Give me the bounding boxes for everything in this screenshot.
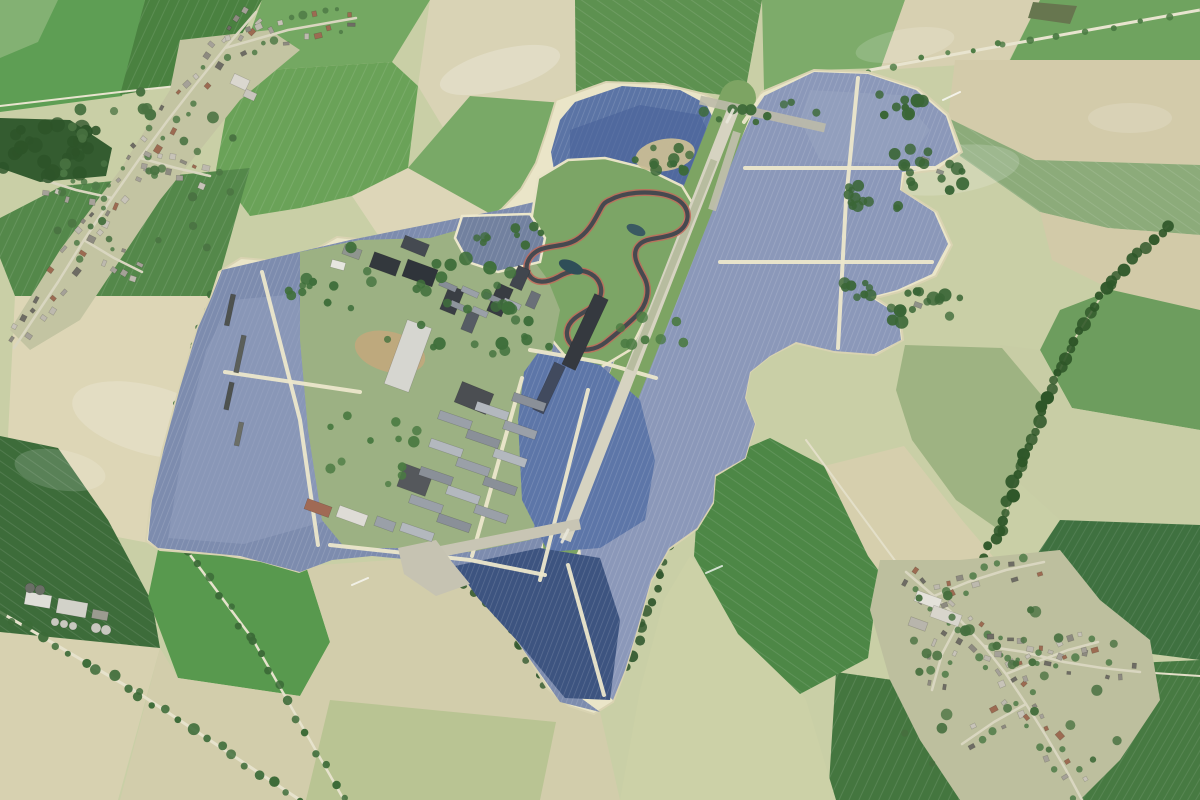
tree [430, 344, 437, 351]
garden-tree [252, 50, 258, 56]
tree [636, 311, 648, 323]
tree [848, 187, 854, 193]
tree [205, 573, 214, 582]
tree [141, 103, 152, 114]
tree [88, 223, 94, 229]
village-house [1026, 646, 1034, 653]
tree [910, 637, 918, 645]
village-house [1008, 562, 1014, 567]
tree [67, 136, 79, 148]
tree [275, 680, 284, 689]
tree [188, 192, 197, 201]
garden-tree [998, 636, 1003, 641]
tree [324, 299, 332, 307]
village-house [934, 584, 941, 590]
tree [229, 603, 235, 609]
tree [366, 276, 377, 287]
garden-tree [1013, 701, 1018, 706]
tree [480, 239, 487, 246]
tree [853, 293, 861, 301]
garden-tree [983, 665, 988, 670]
garden-tree [101, 206, 106, 211]
garden-tree [1071, 653, 1079, 661]
village-house [169, 153, 176, 160]
tree [323, 761, 330, 768]
tree [511, 315, 520, 324]
tree [292, 716, 300, 724]
tree [656, 334, 667, 345]
village-house [1132, 663, 1137, 669]
tree [915, 668, 923, 676]
tree [345, 242, 356, 253]
tree [312, 750, 319, 757]
tree [1001, 496, 1013, 508]
tree [325, 463, 335, 473]
tree [499, 345, 510, 356]
tree [27, 137, 42, 152]
tree [945, 160, 954, 169]
garden-tree [76, 255, 83, 262]
tree [1082, 29, 1088, 35]
tree [106, 236, 113, 243]
garden-tree [980, 563, 988, 571]
tree [82, 142, 94, 154]
tree [1013, 660, 1020, 667]
garden-tree [1024, 724, 1029, 729]
tree [309, 278, 317, 286]
tree [1091, 685, 1102, 696]
tree [1149, 234, 1160, 245]
village-house [283, 42, 289, 46]
village-house [347, 23, 355, 27]
tree [124, 685, 132, 693]
tree [922, 648, 932, 658]
tree [431, 259, 441, 269]
tree [188, 723, 200, 735]
tree [338, 458, 346, 466]
tree [483, 261, 497, 275]
tree [893, 204, 901, 212]
tree [436, 271, 448, 283]
tree [459, 252, 473, 266]
tree [510, 223, 520, 233]
tree [763, 112, 772, 121]
tree [523, 316, 533, 326]
tree [1112, 736, 1121, 745]
tree [98, 217, 106, 225]
tree [367, 437, 374, 444]
garden-tree [975, 653, 983, 661]
tree [332, 781, 341, 790]
tree [679, 165, 685, 171]
garden-tree [1036, 743, 1044, 751]
tree [945, 311, 954, 320]
tree [1046, 746, 1052, 752]
tree [937, 174, 945, 182]
tree [76, 129, 87, 140]
tree [60, 158, 71, 169]
village-house [326, 25, 332, 31]
garden-tree [963, 590, 969, 596]
garden-tree [160, 136, 165, 141]
tree [343, 411, 352, 420]
village-house [1078, 632, 1082, 636]
garden-tree [261, 41, 266, 46]
tree [1049, 376, 1058, 385]
garden-tree [110, 247, 114, 251]
tree [991, 533, 1002, 544]
tree [189, 222, 197, 230]
tree [699, 107, 709, 117]
tree [862, 280, 868, 286]
garden-tree [106, 183, 111, 188]
garden-tree [270, 36, 278, 44]
tree [282, 789, 289, 796]
tree [180, 137, 189, 146]
tree [1033, 415, 1047, 429]
tree [194, 148, 201, 155]
tree [943, 591, 953, 601]
tree [1030, 606, 1042, 618]
village-house [89, 198, 96, 205]
tree [1095, 291, 1103, 299]
tree [155, 237, 161, 243]
village-house [42, 190, 49, 196]
garden-tree [1059, 746, 1065, 752]
garden-tree [969, 572, 977, 580]
village-house [1007, 638, 1013, 641]
silo [69, 622, 77, 630]
garden-tree [1053, 663, 1058, 668]
tree [924, 147, 933, 156]
tree [956, 177, 969, 190]
tree [648, 598, 656, 606]
tree [348, 305, 354, 311]
tree [301, 729, 309, 737]
village-house [176, 175, 183, 181]
tree [207, 111, 219, 123]
tree [901, 162, 908, 169]
tree [226, 749, 236, 759]
tree [21, 620, 32, 631]
tree [161, 705, 170, 714]
tree [52, 643, 59, 650]
tree [913, 287, 921, 295]
tree [417, 321, 425, 329]
tree [1100, 282, 1113, 295]
village-house [942, 684, 946, 690]
tree [109, 670, 120, 681]
tree [787, 99, 794, 106]
silo [35, 585, 45, 595]
garden-tree [186, 112, 191, 117]
tree [507, 304, 518, 315]
tree [812, 109, 820, 117]
tree [1126, 253, 1138, 265]
village-house [987, 634, 994, 640]
tree [38, 119, 53, 134]
silo [51, 618, 59, 626]
tree [229, 134, 236, 141]
tree [672, 317, 682, 327]
satellite-view-solar-airfield [0, 0, 1200, 800]
tree [443, 299, 452, 308]
tree [905, 144, 916, 155]
tree [1037, 407, 1046, 416]
tree [900, 95, 909, 104]
tree [72, 166, 86, 180]
tree [656, 571, 664, 579]
tree [1040, 671, 1049, 680]
tree [481, 289, 492, 300]
tree [504, 267, 516, 279]
tree [780, 100, 788, 108]
tree [249, 637, 257, 645]
tree [174, 716, 181, 723]
tree [90, 664, 101, 675]
tree [215, 592, 223, 600]
tree [398, 462, 407, 471]
tree [58, 188, 66, 196]
tree [391, 417, 400, 426]
tree [685, 151, 694, 160]
garden-tree [1088, 636, 1095, 643]
tree [298, 288, 306, 296]
tree [1166, 13, 1173, 20]
tree [992, 642, 1001, 651]
tree [37, 155, 51, 169]
tree [875, 90, 883, 98]
tree [398, 471, 407, 480]
tree [1090, 756, 1096, 762]
garden-tree [335, 7, 339, 11]
silo [60, 620, 68, 628]
tree [948, 614, 955, 621]
village-house [956, 575, 964, 581]
garden-tree [994, 560, 1000, 566]
tree [909, 306, 916, 313]
garden-tree [121, 166, 125, 170]
tree [148, 702, 154, 708]
tree [941, 709, 953, 721]
tree [493, 282, 501, 290]
village-house [946, 581, 950, 586]
garden-tree [1019, 554, 1028, 563]
tree [904, 290, 911, 297]
tree [68, 122, 77, 131]
haze [1088, 103, 1172, 133]
tree [235, 623, 242, 630]
tree [283, 696, 293, 706]
garden-tree [988, 727, 996, 735]
tree [395, 436, 402, 443]
tree [864, 196, 874, 206]
tree [444, 259, 456, 271]
tree [654, 585, 662, 593]
tree [632, 156, 639, 163]
tree [1003, 704, 1012, 713]
tree [10, 129, 21, 140]
garden-tree [1051, 766, 1057, 772]
tree [641, 335, 650, 344]
village-house [312, 11, 318, 17]
tree [497, 299, 508, 310]
tree [521, 240, 530, 249]
tree [82, 659, 91, 668]
tree [983, 541, 992, 550]
tree [916, 95, 928, 107]
tree [101, 160, 108, 167]
garden-tree [322, 7, 328, 13]
garden-tree [1106, 659, 1113, 666]
village-house [165, 168, 172, 175]
tree [158, 164, 166, 172]
tree [650, 145, 657, 152]
tree [489, 350, 497, 358]
tree [895, 315, 909, 329]
tree [1067, 345, 1076, 354]
garden-tree [1035, 649, 1041, 655]
garden-tree [60, 169, 68, 177]
tree [194, 560, 201, 567]
tree [929, 760, 935, 766]
tree [408, 436, 420, 448]
tree [327, 424, 333, 430]
village-house [277, 20, 283, 26]
tree [998, 516, 1009, 527]
tree [971, 48, 976, 53]
tree [1005, 475, 1019, 489]
village-house [245, 26, 251, 32]
aerial-photo [0, 0, 1200, 800]
tree [1138, 18, 1143, 23]
tree [545, 343, 553, 351]
tree [384, 336, 391, 343]
tree [889, 148, 901, 160]
tree [91, 126, 101, 136]
tree [258, 650, 265, 657]
village-house [1081, 647, 1087, 653]
tree [110, 107, 118, 115]
garden-tree [173, 116, 181, 124]
tree [385, 481, 391, 487]
tree [1054, 633, 1064, 643]
tree [1085, 307, 1097, 319]
tree [880, 111, 889, 120]
tree [935, 293, 945, 303]
tree [269, 776, 280, 787]
tree [133, 692, 142, 701]
tree [1053, 33, 1060, 40]
tree [203, 735, 211, 743]
tree [892, 102, 901, 111]
garden-tree [92, 182, 101, 191]
tree [72, 148, 80, 156]
garden-tree [224, 54, 231, 61]
tree [932, 651, 942, 661]
tree [75, 104, 87, 116]
garden-tree [339, 30, 343, 34]
garden-tree [201, 65, 206, 70]
village-house [1105, 675, 1110, 680]
tree [8, 618, 15, 625]
tree [537, 230, 544, 237]
tree [471, 340, 479, 348]
garden-tree [979, 736, 987, 744]
tree [68, 219, 77, 228]
tree [616, 323, 625, 332]
tree [839, 277, 851, 289]
tree [1030, 707, 1039, 716]
garden-tree [948, 660, 953, 665]
silo [101, 625, 111, 635]
tree [673, 143, 683, 153]
tree [38, 632, 49, 643]
tree [901, 730, 908, 737]
tree [635, 636, 645, 646]
tree [216, 169, 223, 176]
tree [716, 116, 722, 122]
tree [890, 64, 897, 71]
tree [865, 289, 877, 301]
tree [620, 339, 629, 348]
tree [1075, 327, 1083, 335]
village-house [1044, 661, 1051, 666]
tree [14, 141, 28, 155]
tree [1111, 25, 1117, 31]
tree [906, 168, 914, 176]
tree [667, 160, 675, 168]
tree [412, 426, 422, 436]
village-house [348, 12, 352, 17]
village-house [1067, 671, 1071, 674]
garden-tree [942, 671, 949, 678]
garden-tree [1030, 689, 1036, 695]
tree [1159, 229, 1167, 237]
garden-tree [74, 240, 80, 246]
tree [65, 651, 71, 657]
tree [514, 232, 520, 238]
garden-tree [146, 125, 153, 132]
tree [753, 119, 760, 126]
tree [915, 157, 925, 167]
tree [1028, 658, 1036, 666]
tree [737, 104, 748, 115]
tree [203, 243, 211, 251]
tree [1020, 637, 1027, 644]
tree [945, 50, 950, 55]
tree [363, 267, 371, 275]
village-house [304, 33, 309, 39]
tree [650, 161, 658, 169]
tree [916, 595, 923, 602]
tree [227, 188, 235, 196]
tree [906, 177, 915, 186]
tree [1065, 720, 1075, 730]
tree [1026, 36, 1034, 44]
tree [678, 338, 688, 348]
tree [894, 304, 907, 317]
garden-tree [926, 666, 935, 675]
village-house [995, 651, 1002, 657]
tree [995, 40, 1001, 46]
tree [329, 281, 339, 291]
tree [945, 185, 955, 195]
tree [264, 667, 272, 675]
village-house [157, 153, 162, 158]
tree [937, 723, 948, 734]
tree [463, 305, 472, 314]
